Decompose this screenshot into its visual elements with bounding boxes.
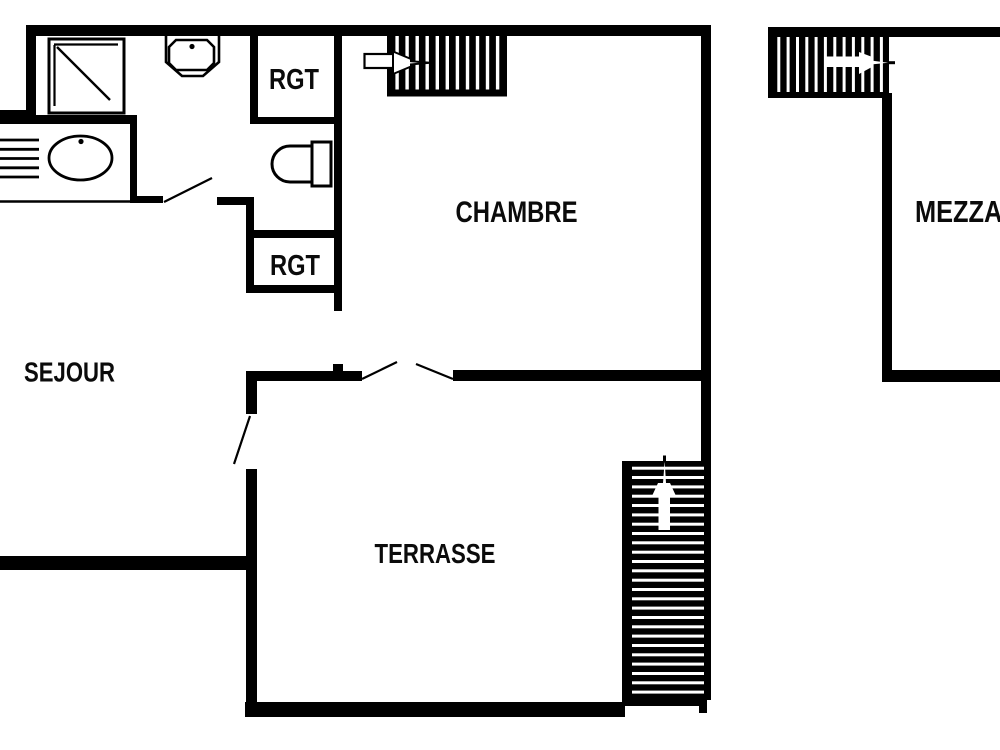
svg-text:RGT: RGT [270,250,320,282]
svg-text:TERRASSE: TERRASSE [375,538,496,569]
svg-text:SEJOUR: SEJOUR [24,356,115,387]
svg-text:CHAMBRE: CHAMBRE [456,196,578,229]
svg-text:MEZZANINE: MEZZANINE [915,194,1000,229]
svg-text:RGT: RGT [269,64,319,96]
